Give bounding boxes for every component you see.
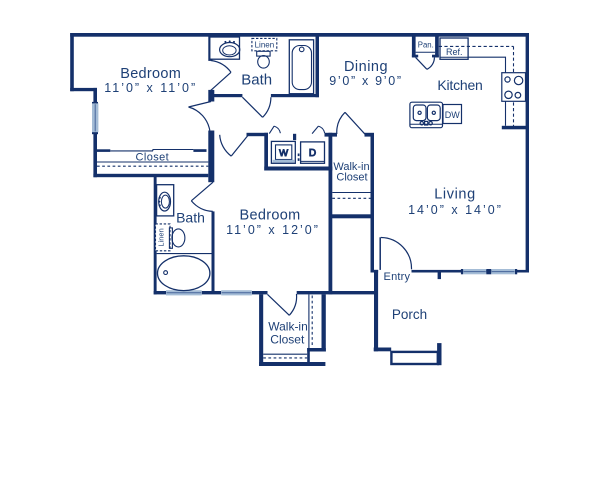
svg-text:Bath: Bath: [241, 72, 272, 89]
svg-text:Closet: Closet: [270, 332, 305, 346]
svg-text:Kitchen: Kitchen: [437, 77, 482, 93]
svg-text:Entry: Entry: [384, 271, 411, 283]
svg-text:Ref.: Ref.: [446, 47, 463, 57]
svg-text:Bath: Bath: [176, 210, 205, 226]
svg-text:Linen: Linen: [156, 228, 165, 246]
svg-text:D: D: [309, 148, 316, 159]
svg-text:Walk-in: Walk-in: [268, 319, 308, 333]
svg-text:Closet: Closet: [336, 172, 367, 184]
svg-text:11’0” x 12’0”: 11’0” x 12’0”: [226, 223, 320, 237]
svg-text:Dining: Dining: [344, 59, 388, 75]
svg-text:14’0” x 14’0”: 14’0” x 14’0”: [408, 203, 503, 217]
svg-text:9’0” x 9’0”: 9’0” x 9’0”: [329, 74, 403, 88]
svg-text:Linen: Linen: [255, 41, 275, 50]
svg-text:Living: Living: [434, 186, 476, 202]
svg-text:Pan.: Pan.: [418, 41, 434, 50]
svg-text:Closet: Closet: [136, 152, 170, 164]
svg-text:Bedroom: Bedroom: [120, 66, 181, 82]
svg-text:11’0” x 11’0”: 11’0” x 11’0”: [104, 81, 197, 95]
svg-text:Porch: Porch: [392, 307, 427, 322]
svg-text:Bedroom: Bedroom: [240, 208, 301, 224]
svg-text:W: W: [279, 148, 288, 159]
svg-text:DW: DW: [445, 110, 460, 120]
